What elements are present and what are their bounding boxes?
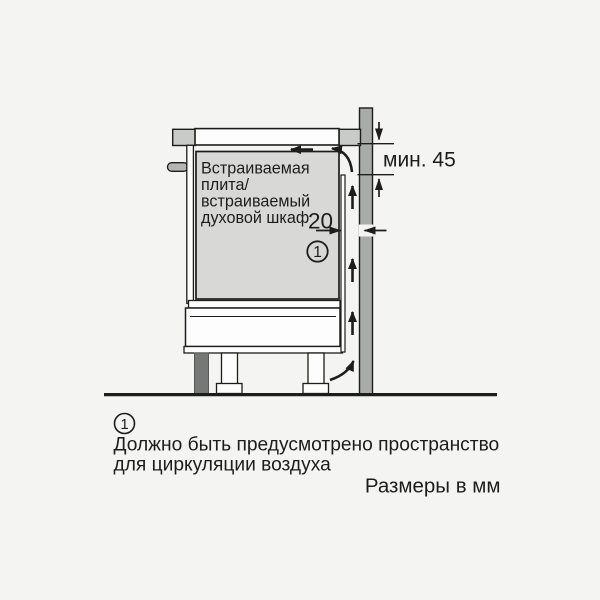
appliance-label-line2: плита/ — [201, 176, 249, 194]
oven-door-front — [187, 145, 194, 303]
cabinet-shelf-band — [189, 301, 341, 309]
appliance-label: Встраиваемая плита/ встраиваемый духовой… — [201, 160, 310, 228]
adjustable-foot-left — [217, 353, 243, 394]
worktop-left-section — [173, 129, 196, 145]
lower-compartment — [186, 308, 341, 347]
worktop-right-section — [339, 129, 361, 145]
callout-number: 1 — [313, 244, 322, 261]
foot-base — [303, 384, 329, 394]
installation-diagram-page: мин. 45 20 1 Встраиваемая плита/ встраив… — [0, 0, 600, 600]
side-wall — [360, 108, 373, 395]
adjustable-foot-right — [303, 353, 329, 394]
hob-top-panel — [195, 129, 339, 145]
foot-stem — [222, 353, 238, 384]
cabinet-bottom-rail — [184, 347, 343, 354]
foot-base — [217, 384, 243, 394]
legend-note-line1: Должно быть предусмотрено пространство — [114, 435, 500, 456]
front-plinth-section — [195, 353, 209, 394]
cabinet-back-panel — [341, 175, 345, 352]
airflow-bottom-curve-arrow-icon — [330, 361, 354, 380]
oven-door-handle — [168, 163, 189, 172]
appliance-label-line4: духовой шкаф — [201, 209, 309, 227]
appliance-label-line3: встраиваемый — [201, 193, 310, 211]
appliance-label-line1: Встраиваемая — [201, 160, 310, 178]
legend: 1 Должно быть предусмотрено пространство… — [114, 414, 501, 498]
dim-label-top-clearance: мин. 45 — [383, 149, 456, 172]
legend-note-line2: для циркуляции воздуха — [114, 455, 332, 476]
foot-stem — [308, 353, 324, 384]
units-note: Размеры в мм — [365, 475, 501, 498]
dim-label-rear-gap: 20 — [308, 209, 333, 234]
legend-marker-number: 1 — [120, 416, 128, 433]
installation-diagram-canvas: мин. 45 20 1 Встраиваемая плита/ встраив… — [0, 0, 600, 600]
